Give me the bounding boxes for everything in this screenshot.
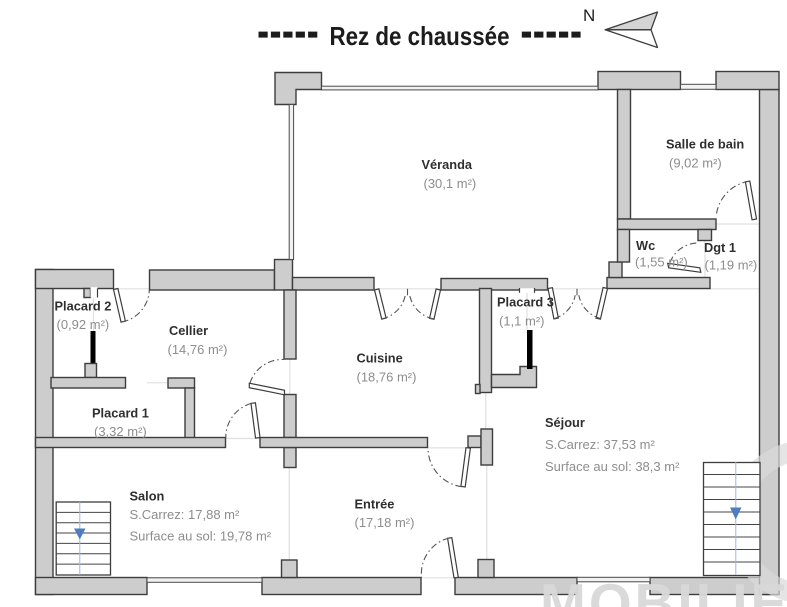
svg-text:(9,02 m²): (9,02 m²) — [669, 156, 722, 171]
svg-text:S.Carrez: 37,53 m²: S.Carrez: 37,53 m² — [545, 437, 655, 452]
svg-text:Surface au sol: 38,3 m²: Surface au sol: 38,3 m² — [545, 459, 680, 474]
svg-text:MOBILIER: MOBILIER — [540, 572, 787, 607]
svg-text:Véranda: Véranda — [422, 157, 473, 172]
svg-text:Placard 2: Placard 2 — [55, 299, 112, 314]
svg-text:Placard 3: Placard 3 — [497, 295, 554, 310]
svg-text:S.Carrez: 17,88 m²: S.Carrez: 17,88 m² — [130, 507, 240, 522]
svg-text:Cellier: Cellier — [169, 323, 208, 338]
svg-text:(14,76 m²): (14,76 m²) — [168, 342, 228, 357]
svg-text:Dgt 1: Dgt 1 — [704, 240, 736, 255]
svg-text:Salon: Salon — [130, 489, 165, 504]
svg-text:N: N — [583, 6, 595, 25]
svg-text:Wc: Wc — [636, 238, 655, 253]
svg-text:(3,32 m²): (3,32 m²) — [94, 424, 147, 439]
svg-text:Entrée: Entrée — [355, 497, 395, 512]
svg-text:Placard 1: Placard 1 — [92, 406, 149, 421]
svg-text:(30,1 m²): (30,1 m²) — [424, 176, 477, 191]
svg-text:Cuisine: Cuisine — [357, 351, 403, 366]
svg-text:(1,55 m²): (1,55 m²) — [635, 255, 688, 270]
svg-text:Surface au sol: 19,78 m²: Surface au sol: 19,78 m² — [130, 529, 272, 544]
svg-text:(17,18 m²): (17,18 m²) — [355, 515, 415, 530]
svg-text:(1,19 m²): (1,19 m²) — [705, 258, 758, 273]
svg-text:(1,1 m²): (1,1 m²) — [499, 314, 545, 329]
svg-text:Salle de bain: Salle de bain — [666, 137, 744, 152]
svg-text:(0,92 m²): (0,92 m²) — [57, 317, 110, 332]
svg-text:Séjour: Séjour — [545, 415, 585, 430]
svg-text:(18,76 m²): (18,76 m²) — [357, 370, 417, 385]
svg-text:Rez de chaussée: Rez de chaussée — [330, 21, 510, 51]
